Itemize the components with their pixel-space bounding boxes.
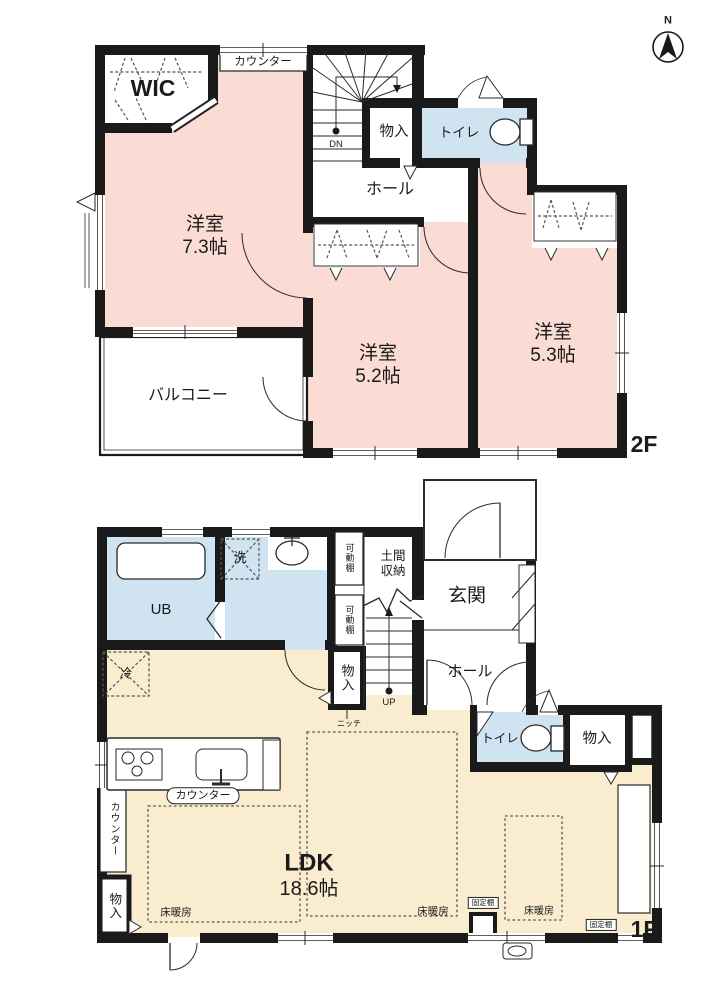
void-nook — [632, 715, 652, 760]
floorplan-page: WIC カウンター DN 物入 トイレ ホール 洋室 7.3帖 洋室 5.2帖 … — [0, 0, 720, 981]
floorplan-drawing — [0, 0, 720, 981]
fixed-shelf-pillar — [471, 914, 495, 936]
floor1-plan — [95, 480, 664, 970]
outdoor-faucet-icon — [503, 943, 532, 959]
storage-2f-door — [404, 166, 417, 179]
stairs-1f — [366, 607, 412, 695]
counter-wall-box — [100, 785, 126, 872]
toilet-icon-1f — [521, 725, 564, 751]
shelf-movable-1-box — [335, 532, 363, 585]
storage-left-box — [100, 877, 129, 934]
bathtub-icon — [117, 543, 205, 579]
balcony-rail — [100, 337, 307, 455]
shoe-cabinet — [519, 565, 535, 643]
storage-by-stairs-box — [331, 649, 363, 707]
tall-cabinet — [618, 785, 650, 913]
kitchen-island — [107, 738, 280, 790]
compass-icon — [653, 32, 683, 62]
floor2-plan — [77, 43, 629, 460]
entrance-porch — [424, 480, 536, 560]
toilet-icon-2f — [490, 119, 533, 145]
storage-right-floor — [570, 712, 625, 765]
shelf-movable-2-box — [335, 595, 363, 645]
